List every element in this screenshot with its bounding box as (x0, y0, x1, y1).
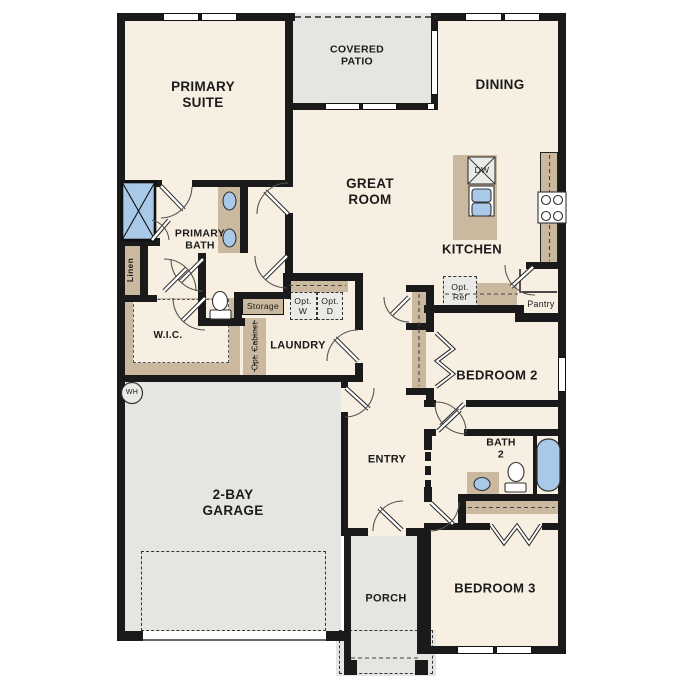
bathtub (537, 439, 560, 491)
toilet (508, 463, 524, 482)
label-dishwasher: DW (467, 165, 497, 175)
room-label-wic: W.I.C. (138, 330, 198, 342)
burner (554, 196, 563, 205)
label-storage: Storage (242, 301, 284, 311)
room-label-covered-patio: COVERED PATIO (317, 44, 397, 69)
room-label-laundry: LAUNDRY (238, 340, 358, 353)
toilet (213, 292, 228, 311)
room-label-entry: ENTRY (352, 454, 422, 467)
toilet (505, 483, 526, 492)
door-bath-corridor (257, 183, 288, 214)
room-label-primary-bath: PRIMARY BATH (163, 228, 238, 253)
sink-basin (472, 203, 491, 216)
burner (542, 212, 551, 221)
toilet (210, 310, 231, 319)
door-coat-closet (384, 297, 409, 322)
label-opt-dryer: Opt. D (318, 296, 342, 316)
bifold-bedroom3-closet (491, 525, 541, 543)
label-opt-ref: Opt. Ref (446, 282, 474, 302)
door-bedroom3 (430, 502, 459, 531)
label-linen: Linen (125, 258, 135, 282)
room-label-primary-suite: PRIMARY SUITE (153, 79, 253, 111)
floor-plan: PRIMARY SUITE COVERED PATIO DINING GREAT… (0, 0, 687, 687)
burner (554, 212, 563, 221)
room-label-garage: 2-BAY GARAGE (188, 487, 278, 519)
sink (223, 192, 236, 210)
door-garage (345, 388, 374, 417)
label-pantry: Pantry (516, 299, 566, 309)
room-label-bath2: BATH 2 (486, 437, 516, 462)
door-primary-suite (161, 186, 192, 218)
door-front-entry (373, 501, 403, 531)
door-primary-bath (164, 259, 196, 291)
room-label-bedroom2: BEDROOM 2 (427, 367, 567, 382)
door-water-closet (171, 259, 203, 291)
door-storage (255, 256, 287, 288)
room-label-bedroom3: BEDROOM 3 (425, 580, 565, 595)
burner (542, 196, 551, 205)
sink (474, 478, 490, 491)
label-water-heater: WH (120, 389, 144, 397)
room-label-kitchen: KITCHEN (412, 241, 532, 256)
room-label-porch: PORCH (351, 593, 421, 606)
door-wic (173, 298, 205, 330)
room-label-great-room: GREAT ROOM (333, 176, 408, 208)
room-label-dining: DINING (440, 77, 560, 93)
label-opt-washer: Opt. W (291, 296, 315, 316)
sink-basin (472, 189, 491, 202)
